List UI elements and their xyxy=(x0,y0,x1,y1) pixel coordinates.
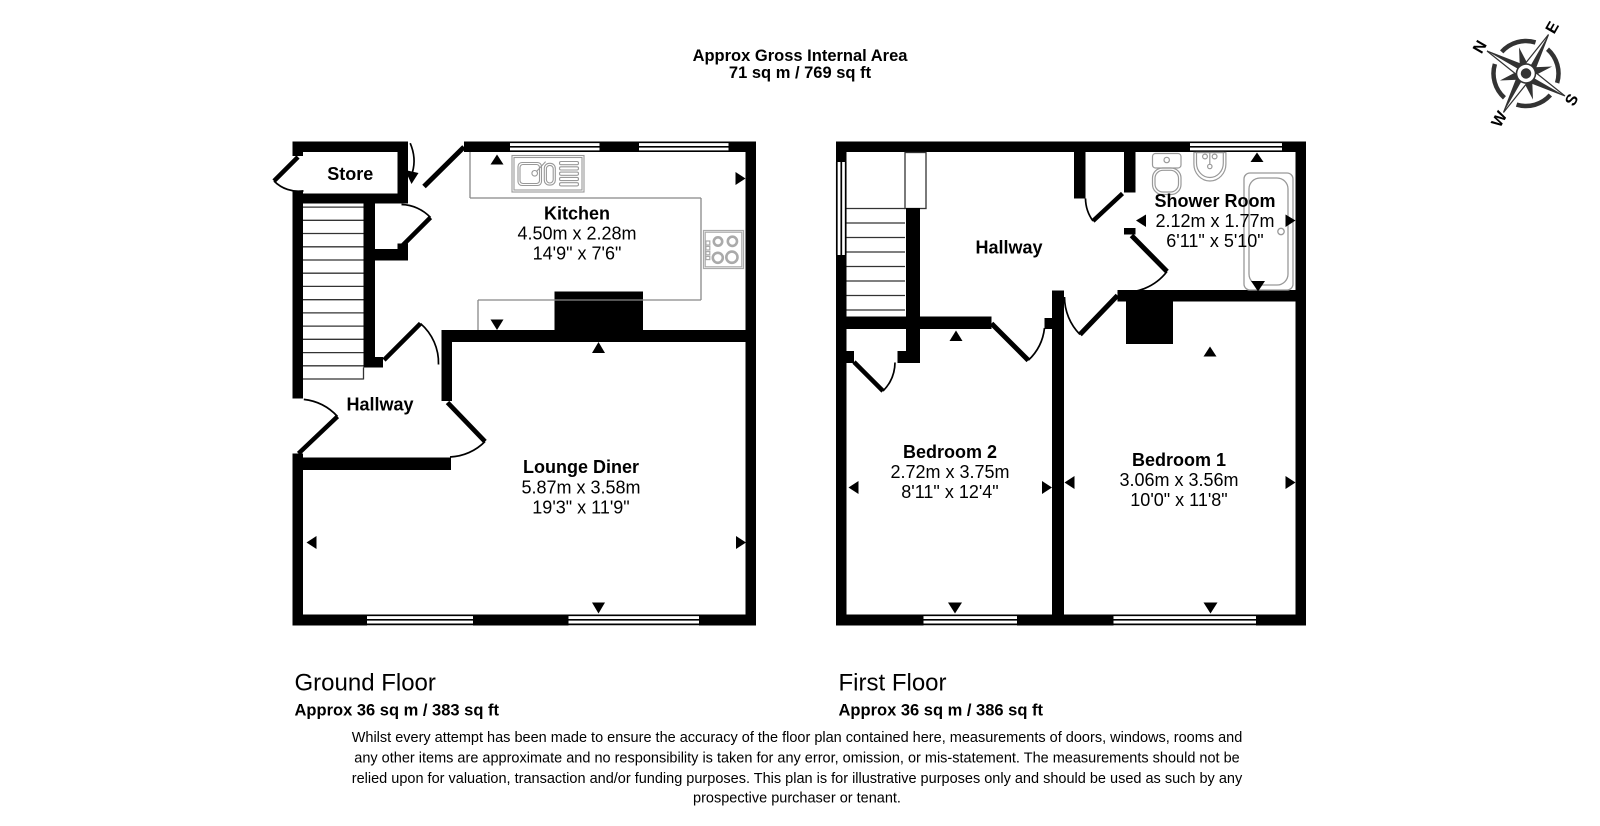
svg-text:Lounge Diner: Lounge Diner xyxy=(523,457,639,477)
svg-text:Ground Floor: Ground Floor xyxy=(295,670,436,697)
svg-text:4.50m x 2.28m: 4.50m x 2.28m xyxy=(517,224,636,244)
svg-text:any other items are approximat: any other items are approximate and no r… xyxy=(354,751,1239,767)
svg-text:Whilst every attempt has been: Whilst every attempt has been made to en… xyxy=(352,730,1243,746)
svg-text:Store: Store xyxy=(327,164,373,184)
svg-text:Bedroom 2: Bedroom 2 xyxy=(903,442,997,462)
svg-text:Approx Gross Internal Area: Approx Gross Internal Area xyxy=(693,47,909,65)
svg-text:10'0" x 11'8": 10'0" x 11'8" xyxy=(1130,490,1227,510)
svg-text:Approx 36 sq m / 386 sq ft: Approx 36 sq m / 386 sq ft xyxy=(839,702,1044,720)
svg-text:3.06m x 3.56m: 3.06m x 3.56m xyxy=(1119,470,1238,490)
svg-text:71 sq m / 769 sq ft: 71 sq m / 769 sq ft xyxy=(729,64,872,82)
svg-text:Bedroom 1: Bedroom 1 xyxy=(1132,450,1226,470)
svg-text:prospective purchaser or tenan: prospective purchaser or tenant. xyxy=(693,791,901,807)
svg-text:Hallway: Hallway xyxy=(975,238,1042,258)
svg-text:14'9" x 7'6": 14'9" x 7'6" xyxy=(533,244,622,264)
svg-text:Kitchen: Kitchen xyxy=(544,204,610,224)
svg-text:5.87m x 3.58m: 5.87m x 3.58m xyxy=(521,478,640,498)
svg-text:relied upon for valuation, tra: relied upon for valuation, transaction a… xyxy=(352,771,1243,787)
svg-text:Shower Room: Shower Room xyxy=(1154,191,1275,211)
svg-text:2.72m x 3.75m: 2.72m x 3.75m xyxy=(890,462,1009,482)
svg-text:19'3" x 11'9": 19'3" x 11'9" xyxy=(532,498,629,518)
svg-text:Approx 36 sq m / 383 sq ft: Approx 36 sq m / 383 sq ft xyxy=(295,702,500,720)
svg-text:6'11" x 5'10": 6'11" x 5'10" xyxy=(1166,231,1263,251)
svg-text:2.12m x 1.77m: 2.12m x 1.77m xyxy=(1155,211,1274,231)
svg-text:Hallway: Hallway xyxy=(346,395,413,415)
svg-text:First Floor: First Floor xyxy=(839,670,947,697)
svg-text:8'11" x 12'4": 8'11" x 12'4" xyxy=(901,482,998,502)
